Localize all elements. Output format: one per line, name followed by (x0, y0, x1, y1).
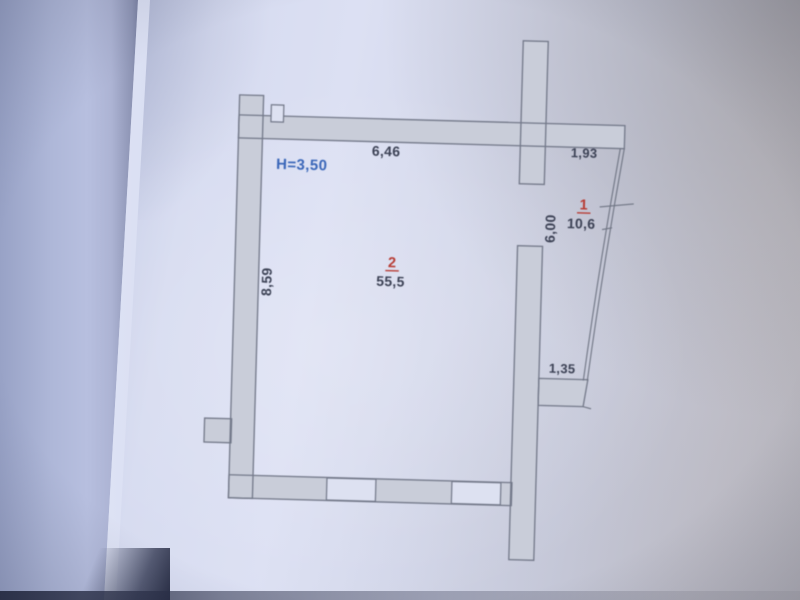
photo-vignette (0, 0, 800, 600)
